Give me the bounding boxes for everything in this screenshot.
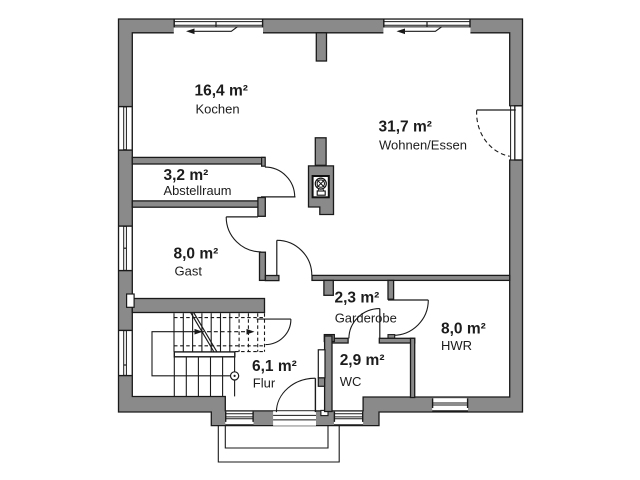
svg-text:16,4 m²: 16,4 m²: [195, 83, 248, 100]
svg-text:31,7 m²: 31,7 m²: [379, 119, 432, 136]
svg-text:2,9 m²: 2,9 m²: [340, 352, 385, 369]
svg-text:8,0 m²: 8,0 m²: [174, 246, 219, 263]
svg-text:Garderobe: Garderobe: [335, 311, 397, 326]
svg-text:8,0 m²: 8,0 m²: [441, 321, 486, 338]
svg-text:Kochen: Kochen: [196, 101, 240, 116]
svg-text:Wohnen/Essen: Wohnen/Essen: [379, 138, 467, 153]
svg-text:3,2 m²: 3,2 m²: [164, 167, 209, 184]
svg-text:Flur: Flur: [253, 376, 276, 391]
svg-text:2,3 m²: 2,3 m²: [335, 290, 380, 307]
svg-text:HWR: HWR: [441, 338, 472, 353]
svg-text:Gast: Gast: [175, 264, 203, 279]
svg-text:6,1 m²: 6,1 m²: [252, 358, 297, 375]
svg-text:WC: WC: [340, 374, 362, 389]
svg-text:Abstellraum: Abstellraum: [164, 183, 232, 198]
